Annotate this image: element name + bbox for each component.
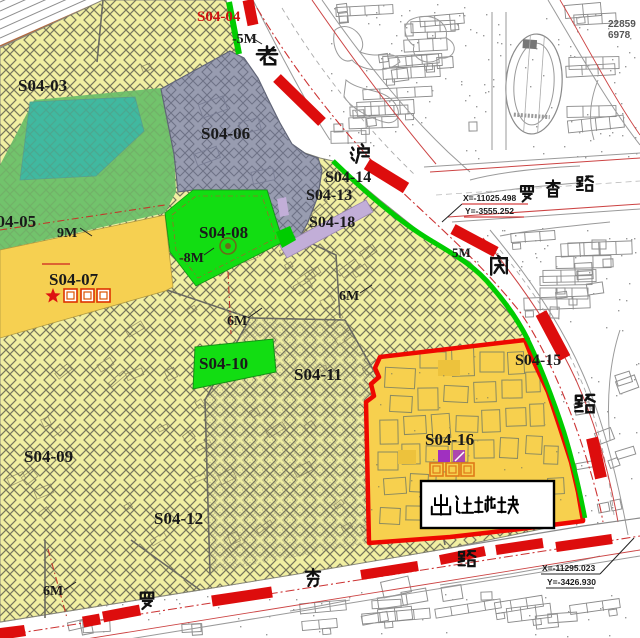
svg-text:S04-16: S04-16 xyxy=(425,430,474,449)
svg-text:S04-12: S04-12 xyxy=(154,509,203,528)
svg-text:S04-03: S04-03 xyxy=(18,76,67,95)
svg-text:S04-06: S04-06 xyxy=(201,124,250,143)
svg-text:S04-04: S04-04 xyxy=(197,9,241,25)
svg-text:6M: 6M xyxy=(43,584,63,599)
svg-text:S04-11: S04-11 xyxy=(294,365,342,384)
svg-text:6978: 6978 xyxy=(608,30,631,41)
svg-text:-5M: -5M xyxy=(232,32,257,47)
svg-text:6M: 6M xyxy=(227,314,247,329)
svg-text:S04-13: S04-13 xyxy=(306,187,352,204)
svg-text:22859: 22859 xyxy=(608,19,636,30)
svg-text:X=-11025.498: X=-11025.498 xyxy=(463,193,516,203)
svg-text:S04-18: S04-18 xyxy=(309,214,355,231)
svg-text:S04-05: S04-05 xyxy=(0,212,36,231)
svg-text:S04-10: S04-10 xyxy=(199,354,248,373)
svg-text:S04-14: S04-14 xyxy=(325,169,371,186)
svg-text:9M: 9M xyxy=(57,226,77,241)
svg-text:S04-15: S04-15 xyxy=(515,352,561,369)
svg-text:6M: 6M xyxy=(339,289,359,304)
svg-text:Y=-3426.930: Y=-3426.930 xyxy=(547,577,596,587)
svg-text:-8M: -8M xyxy=(179,251,204,266)
svg-text:S04-07: S04-07 xyxy=(49,270,99,289)
svg-text:X=-11295.023: X=-11295.023 xyxy=(542,563,595,573)
svg-text:5M: 5M xyxy=(452,245,471,260)
svg-text:Y=-3555.252: Y=-3555.252 xyxy=(465,206,514,216)
svg-text:S04-09: S04-09 xyxy=(24,447,73,466)
